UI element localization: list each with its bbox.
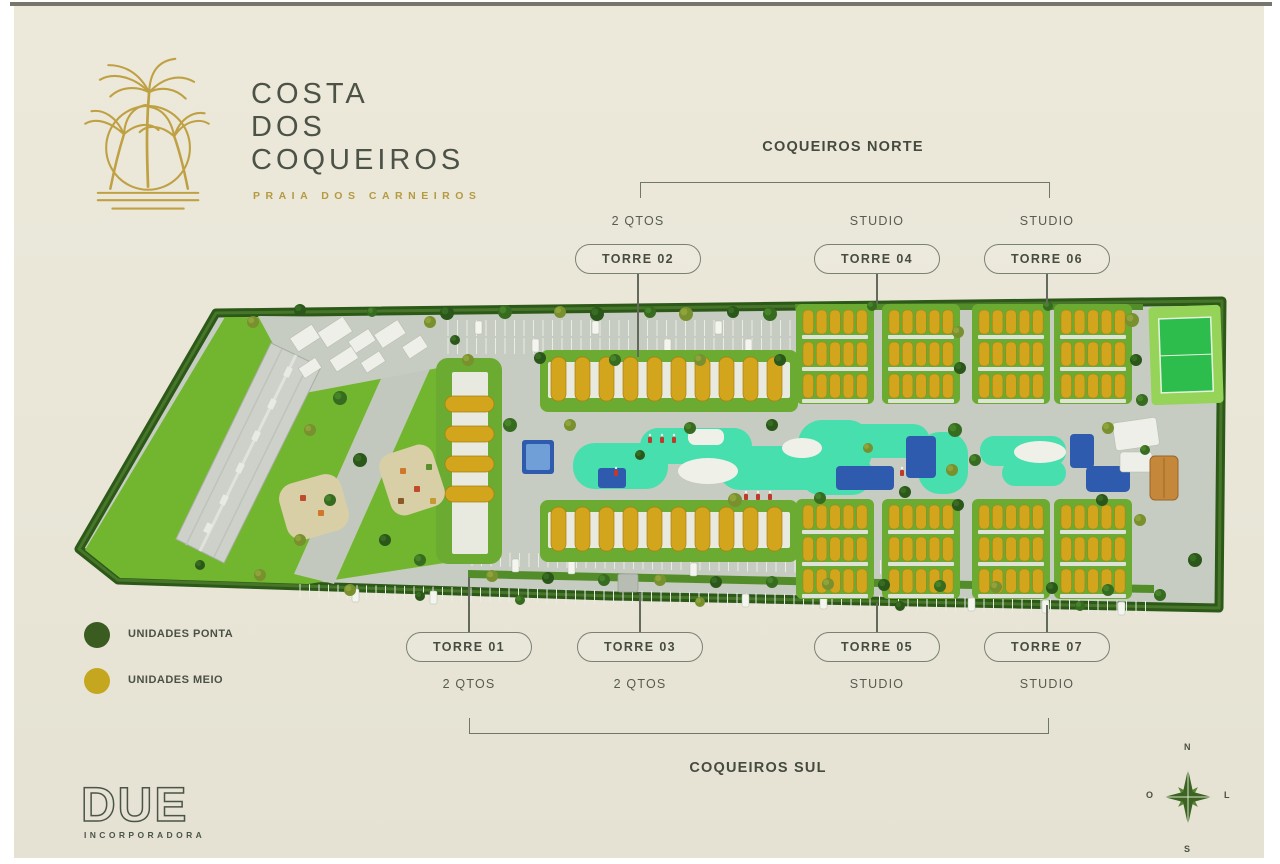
leader-line-torre-06	[1046, 274, 1048, 304]
compass-s: S	[1184, 844, 1190, 854]
due-descriptor: INCORPORADORA	[84, 830, 205, 840]
tower-pill-torre-02: TORRE 02	[575, 244, 701, 274]
legend-label-ponta: UNIDADES PONTA	[128, 628, 233, 640]
restaurant-building	[1150, 456, 1178, 500]
bracket-south	[469, 718, 1049, 734]
section-label-south: COQUEIROS SUL	[689, 760, 826, 776]
leader-line-torre-02	[637, 274, 639, 357]
leader-line-torre-05	[876, 603, 878, 632]
due-logo-text: DUE	[81, 779, 188, 830]
tower-type-torre-01: 2 QTOS	[443, 677, 496, 691]
tower-pill-torre-01: TORRE 01	[406, 632, 532, 662]
tennis-court	[1148, 305, 1223, 405]
bracket-north	[640, 182, 1050, 198]
tower-type-torre-02: 2 QTOS	[612, 214, 665, 228]
project-title: COSTA DOS COQUEIROS	[251, 78, 464, 177]
tower-type-torre-04: STUDIO	[850, 214, 904, 228]
tower-pill-torre-03: TORRE 03	[577, 632, 703, 662]
legend-dot-ponta	[84, 622, 110, 648]
tower-type-torre-03: 2 QTOS	[614, 677, 667, 691]
tower-pill-torre-07: TORRE 07	[984, 632, 1110, 662]
section-label-north: COQUEIROS NORTE	[762, 139, 923, 155]
tower-type-torre-07: STUDIO	[1020, 677, 1074, 691]
compass-e: L	[1224, 790, 1230, 800]
legend-label-meio: UNIDADES MEIO	[128, 674, 223, 686]
legend-dot-meio	[84, 668, 110, 694]
tower-pill-torre-06: TORRE 06	[984, 244, 1110, 274]
tower-pill-torre-05: TORRE 05	[814, 632, 940, 662]
palm-trees-icon	[58, 40, 236, 218]
compass-rose-icon	[1140, 742, 1236, 850]
compass-n: N	[1184, 742, 1191, 752]
leader-line-torre-01	[468, 577, 470, 632]
leader-line-torre-07	[1046, 605, 1048, 632]
leader-line-torre-03	[639, 593, 641, 632]
tower-type-torre-06: STUDIO	[1020, 214, 1074, 228]
tower-pill-torre-04: TORRE 04	[814, 244, 940, 274]
due-logo: DUE	[80, 778, 220, 830]
leader-line-torre-04	[876, 274, 878, 304]
brochure-page: COSTA DOS COQUEIROS PRAIA DOS CARNEIROS …	[0, 0, 1280, 864]
project-subtitle: PRAIA DOS CARNEIROS	[253, 190, 481, 202]
compass-w: O	[1146, 790, 1153, 800]
tower-type-torre-05: STUDIO	[850, 677, 904, 691]
